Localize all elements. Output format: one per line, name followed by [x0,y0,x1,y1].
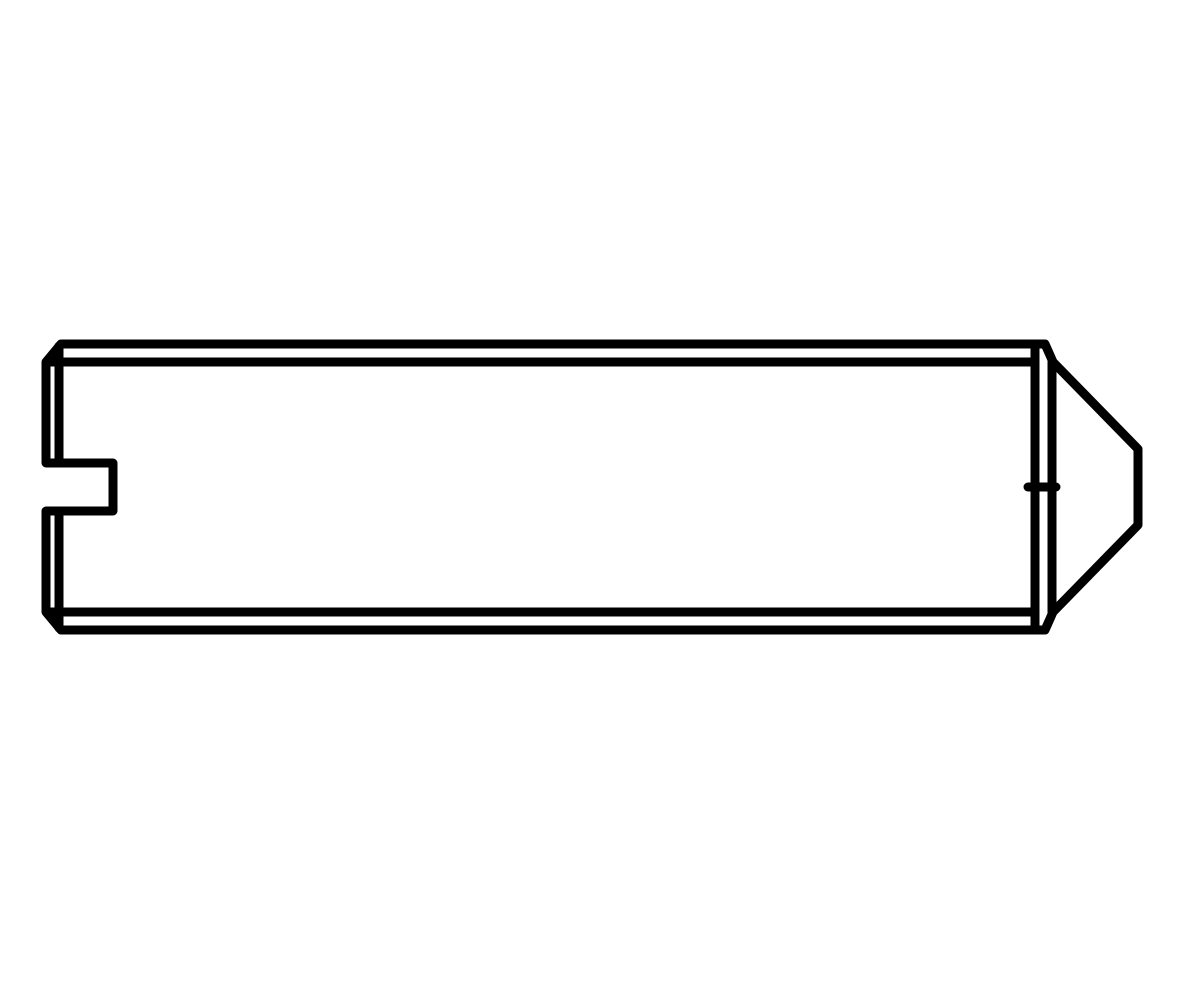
screw-outline [46,344,1138,630]
set-screw-technical-drawing [0,0,1200,1000]
drawing-canvas [0,0,1200,1000]
